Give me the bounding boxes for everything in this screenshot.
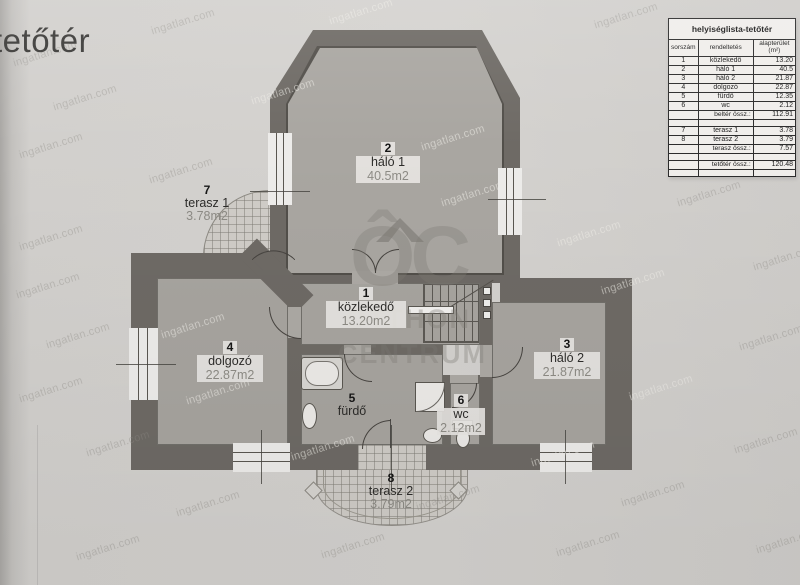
ingatlan-watermark: ingatlan.com	[556, 219, 623, 250]
page-title: tetőtér	[0, 22, 90, 60]
cell-num: 1	[669, 57, 699, 66]
cell-area: 3.78	[753, 127, 795, 136]
table-row: 6wc2.12	[669, 102, 796, 111]
ingatlan-watermark: ingatlan.com	[628, 373, 695, 404]
cell-name: wc	[698, 102, 753, 111]
cell-num: 4	[669, 84, 699, 93]
ingatlan-watermark: ingatlan.com	[752, 243, 800, 274]
table-subtotal-row: beltér össz.:112.91	[669, 111, 796, 120]
cell-name	[698, 120, 753, 127]
dimension-tick	[565, 430, 566, 484]
railing-post	[483, 311, 491, 319]
room-dolgozo	[157, 278, 288, 445]
window-halo1-left	[268, 133, 292, 205]
cell-num: 7	[669, 127, 699, 136]
cell-num	[669, 154, 699, 161]
ingatlan-watermark: ingatlan.com	[75, 533, 142, 564]
ingatlan-watermark: ingatlan.com	[676, 179, 743, 210]
cell-area: 12.35	[753, 93, 795, 102]
shower	[415, 382, 445, 412]
cell-name: fürdő	[698, 93, 753, 102]
room-number: 7	[172, 184, 242, 197]
cell-num	[669, 120, 699, 127]
room-halo2	[492, 302, 606, 445]
dimension-tick	[488, 199, 546, 200]
cell-area: 120.48	[753, 161, 795, 170]
cell-name: tetőtér össz.:	[698, 161, 753, 170]
window-halo2-bottom	[540, 443, 592, 472]
ingatlan-watermark: ingatlan.com	[755, 526, 800, 557]
railing-post	[483, 299, 491, 307]
cell-area: 3.79	[753, 136, 795, 145]
railing-post	[483, 287, 491, 295]
ingatlan-watermark: ingatlan.com	[150, 7, 217, 38]
cell-area: 112.91	[753, 111, 795, 120]
ingatlan-watermark: ingatlan.com	[733, 426, 800, 457]
dimension-tick	[391, 425, 392, 491]
table-spacer-row	[669, 170, 796, 177]
cell-area: 13.20	[753, 57, 795, 66]
ingatlan-watermark: ingatlan.com	[620, 479, 687, 510]
ingatlan-watermark: ingatlan.com	[555, 529, 622, 560]
cell-area: 40.5	[753, 66, 795, 75]
ingatlan-watermark: ingatlan.com	[18, 223, 85, 254]
cell-name: beltér össz.:	[698, 111, 753, 120]
cell-area	[753, 120, 795, 127]
window-halo1-right	[498, 168, 522, 235]
ingatlan-watermark: ingatlan.com	[18, 131, 85, 162]
cell-name	[698, 170, 753, 177]
cell-num	[669, 170, 699, 177]
ingatlan-watermark: ingatlan.com	[738, 323, 800, 354]
table-row: 2háló 140.5	[669, 66, 796, 75]
table-spacer-row	[669, 120, 796, 127]
cell-name: háló 2	[698, 75, 753, 84]
cell-area: 22.87	[753, 84, 795, 93]
cell-area: 7.57	[753, 145, 795, 154]
washbasin	[302, 403, 317, 429]
table-header-row: sorszám rendeltetés alapterület (m²)	[669, 40, 796, 57]
room-halo1	[288, 48, 502, 273]
cell-area: 21.87	[753, 75, 795, 84]
table-row: 5fürdő12.35	[669, 93, 796, 102]
cell-name: terasz 1	[698, 127, 753, 136]
ingatlan-watermark: ingatlan.com	[320, 531, 387, 562]
table-row: 7terasz 13.78	[669, 127, 796, 136]
ingatlan-watermark: ingatlan.com	[593, 1, 660, 32]
ingatlan-watermark: ingatlan.com	[45, 321, 112, 352]
stair-handrail	[408, 306, 454, 314]
cell-area	[753, 170, 795, 177]
cell-name: közlekedő	[698, 57, 753, 66]
table-spacer-row	[669, 154, 796, 161]
cell-area	[753, 154, 795, 161]
cell-name: háló 1	[698, 66, 753, 75]
cell-num: 5	[669, 93, 699, 102]
table-row: 3háló 221.87	[669, 75, 796, 84]
wall-right	[606, 278, 632, 470]
toilet-bowl	[456, 429, 470, 448]
cell-name: terasz 2	[698, 136, 753, 145]
ingatlan-watermark: ingatlan.com	[328, 0, 395, 27]
ingatlan-watermark: ingatlan.com	[15, 271, 82, 302]
cell-num	[669, 111, 699, 120]
cell-num: 8	[669, 136, 699, 145]
dimension-tick	[261, 430, 262, 484]
cell-area: 2.12	[753, 102, 795, 111]
toilet-tank	[452, 420, 473, 429]
table-title-row: helyiséglista-tetőtér	[669, 19, 796, 40]
cell-name: terasz össz.:	[698, 145, 753, 154]
wall-right-wing-top	[502, 278, 632, 302]
ingatlan-watermark: ingatlan.com	[175, 489, 242, 520]
cell-num: 6	[669, 102, 699, 111]
table-row: 1közlekedő13.20	[669, 57, 796, 66]
opening-wc-door	[450, 375, 478, 383]
paper-fold-line	[37, 425, 38, 585]
ingatlan-watermark: ingatlan.com	[18, 375, 85, 406]
opening-furdo-door	[344, 345, 371, 354]
cell-num: 2	[669, 66, 699, 75]
dimension-tick	[250, 191, 310, 192]
room-list-table: helyiséglista-tetőtér sorszám rendelteté…	[668, 18, 796, 177]
cell-num	[669, 161, 699, 170]
table-subtotal-row: terasz össz.:7.57	[669, 145, 796, 154]
door-leaf-terrace2	[390, 419, 391, 448]
bathtub	[301, 357, 343, 390]
cell-num	[669, 145, 699, 154]
floorplan-photo: ingatlan.com ingatlan.com ingatlan.com i…	[0, 0, 800, 585]
dimension-tick	[116, 364, 176, 365]
col-header-name: rendeltetés	[698, 40, 753, 57]
opening-halo2-door	[480, 345, 492, 377]
shower-tray-curve	[416, 383, 445, 412]
sink	[423, 428, 442, 443]
col-header-area-line2: (m²)	[768, 47, 780, 54]
wall-furdo-top	[301, 345, 443, 354]
table-total-row: tetőtér össz.:120.48	[669, 161, 796, 170]
table-row: 4dolgozó22.87	[669, 84, 796, 93]
table-title: helyiséglista-tetőtér	[669, 19, 796, 40]
ingatlan-watermark: ingatlan.com	[52, 83, 119, 114]
bathtub-basin	[305, 361, 339, 386]
table-row: 8terasz 23.79	[669, 136, 796, 145]
col-header-area: alapterület (m²)	[753, 40, 795, 57]
col-header-num: sorszám	[669, 40, 699, 57]
ingatlan-watermark: ingatlan.com	[148, 156, 215, 187]
cell-name: dolgozó	[698, 84, 753, 93]
cell-name	[698, 154, 753, 161]
cell-num: 3	[669, 75, 699, 84]
